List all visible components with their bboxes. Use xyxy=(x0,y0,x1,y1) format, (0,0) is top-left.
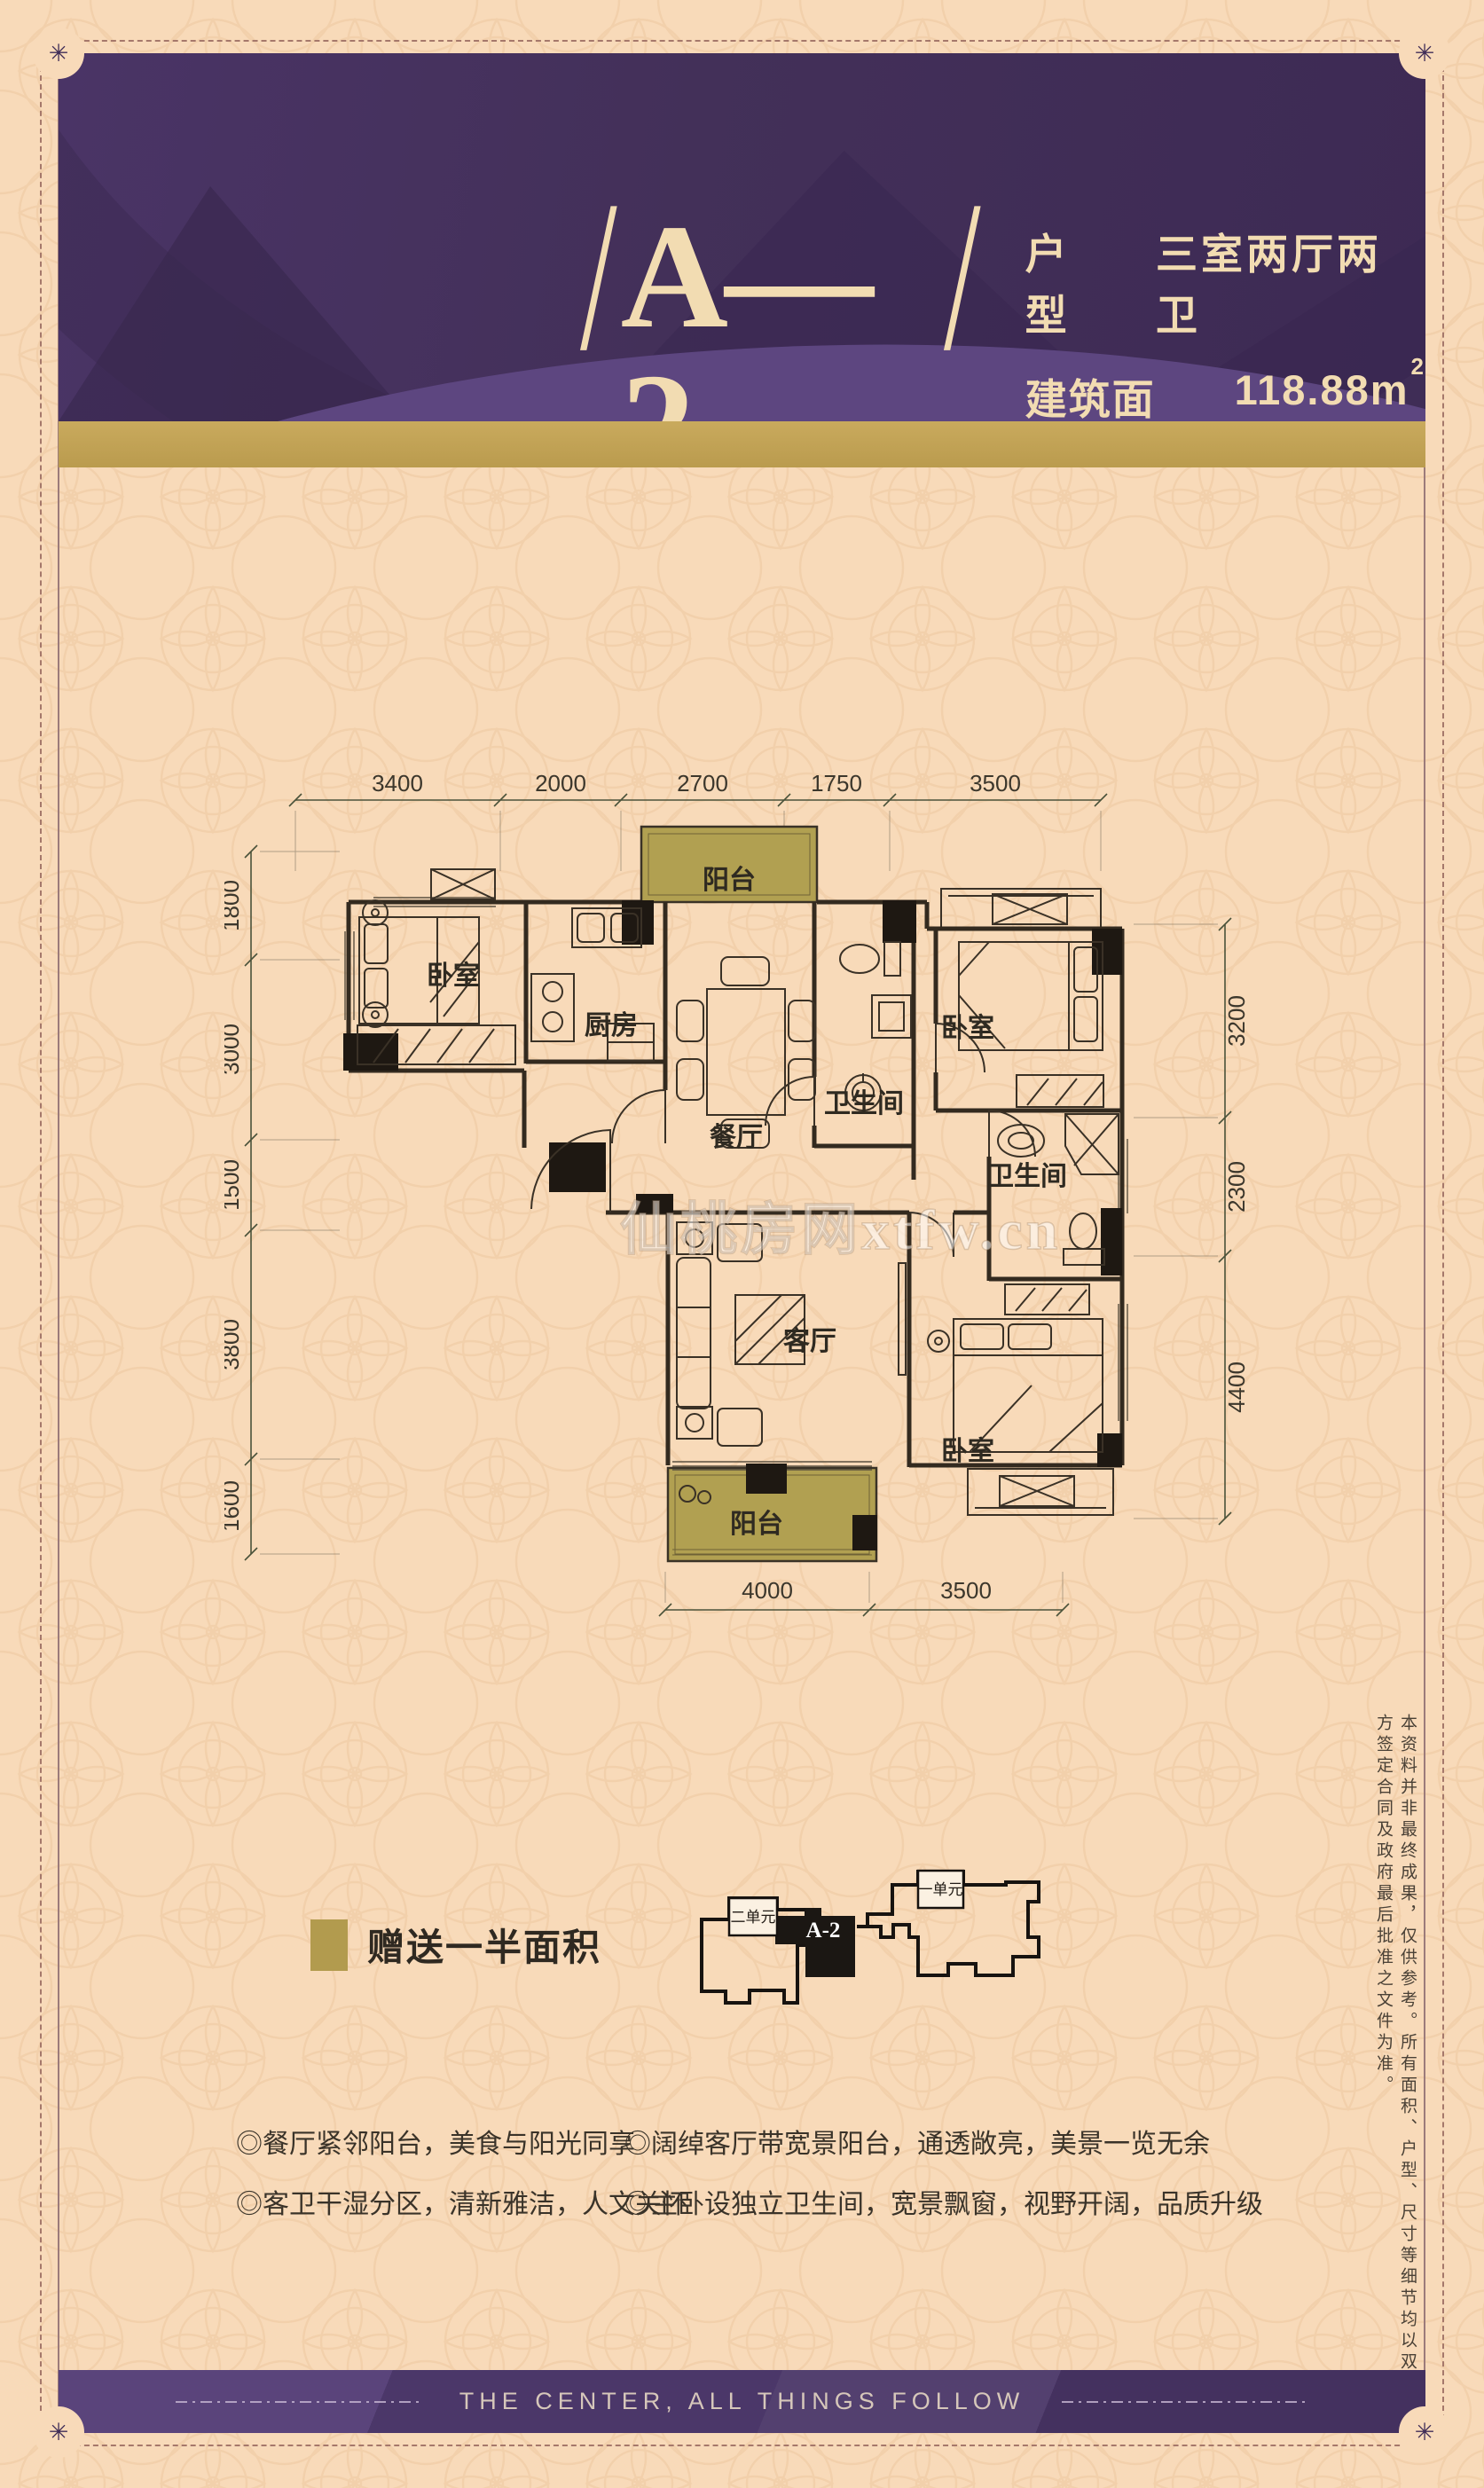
svg-text:卧室: 卧室 xyxy=(941,1436,994,1466)
gold-accent-bar xyxy=(59,421,1425,467)
balcony-areas xyxy=(641,827,876,1561)
svg-text:客厅: 客厅 xyxy=(783,1326,836,1356)
svg-text:卧室: 卧室 xyxy=(941,1013,994,1043)
feature-item: ◎阔绰客厅带宽景阳台，通透敞亮，美景一览无余 xyxy=(624,2122,1210,2161)
area-label: 建筑面积： xyxy=(1025,365,1235,421)
footer-dash-line-right xyxy=(1062,2401,1308,2403)
feature-item: ◎餐厅紧邻阳台，美食与阳光同享 xyxy=(236,2122,624,2161)
svg-text:3500: 3500 xyxy=(940,1577,992,1604)
feature-list: ◎餐厅紧邻阳台，美食与阳光同享 ◎阔绰客厅带宽景阳台，通透敞亮，美景一览无余 ◎… xyxy=(236,2122,1265,2242)
type-label: 户型 xyxy=(1025,220,1115,342)
corner-ornament: ✳ xyxy=(1399,27,1450,79)
area-value: 118.88m xyxy=(1235,365,1409,421)
svg-text:厨房: 厨房 xyxy=(585,1011,638,1040)
poster-page: / A—2 / 户型 三室两厅两卫 建筑面积： 118.88m 2 ✳ ✳ ✳ … xyxy=(0,0,1484,2488)
asterisk-icon: ✳ xyxy=(1415,42,1435,66)
unit-code: A—2 xyxy=(621,202,935,421)
keymap-unit2-label: 二单元 xyxy=(731,1909,776,1926)
corner-ornament: ✳ xyxy=(33,27,84,79)
building-key-map: 二单元 一单元 A-2 xyxy=(699,1857,1054,2066)
svg-text:3400: 3400 xyxy=(372,770,423,797)
svg-text:1750: 1750 xyxy=(811,770,862,797)
area-superscript: 2 xyxy=(1411,353,1425,421)
corner-ornament: ✳ xyxy=(33,2406,84,2458)
svg-text:餐厅: 餐厅 xyxy=(710,1123,763,1152)
svg-text:4400: 4400 xyxy=(1223,1362,1250,1413)
svg-text:阳台: 阳台 xyxy=(703,865,756,895)
legend-label: 赠送一半面积 xyxy=(367,1918,601,1972)
svg-text:3800: 3800 xyxy=(224,1319,244,1370)
header-content: / A—2 / 户型 三室两厅两卫 建筑面积： 118.88m 2 xyxy=(580,184,1425,421)
watermark: 仙桃房网xtfw.cn xyxy=(620,1198,1061,1261)
floor-plan: 3400 2000 2700 1750 3500 1800 3000 1500 … xyxy=(224,729,1280,1625)
slash-divider: / xyxy=(580,169,617,384)
keymap-unit1-label: 一单元 xyxy=(918,1881,963,1898)
asterisk-icon: ✳ xyxy=(49,42,69,66)
svg-text:卫生间: 卫生间 xyxy=(987,1162,1067,1191)
corner-ornament: ✳ xyxy=(1399,2406,1450,2458)
svg-text:1500: 1500 xyxy=(224,1159,244,1211)
svg-text:4000: 4000 xyxy=(742,1577,793,1604)
feature-item: ◎主卧设独立卫生间，宽景飘窗，视野开阔，品质升级 xyxy=(624,2182,1263,2221)
feature-item: ◎客卫干湿分区，清新雅洁，人文关怀 xyxy=(236,2182,624,2221)
footer-dash-line-left xyxy=(176,2401,422,2403)
svg-text:2300: 2300 xyxy=(1223,1161,1250,1213)
asterisk-icon: ✳ xyxy=(1415,2421,1435,2445)
svg-text:1600: 1600 xyxy=(224,1480,244,1532)
svg-text:2700: 2700 xyxy=(677,770,728,797)
footer-slogan: THE CENTER, ALL THINGS FOLLOW xyxy=(459,2388,1025,2415)
legend-gold-swatch xyxy=(310,1919,348,1971)
svg-text:3200: 3200 xyxy=(1223,995,1250,1047)
disclaimer-text: 本资料并非最终成果，仅供参考。所有面积、户型、尺寸等细节均以双方签定合同及政府最… xyxy=(1371,1714,1419,2388)
svg-text:1800: 1800 xyxy=(224,880,244,931)
legend: 赠送一半面积 xyxy=(310,1918,601,1972)
svg-text:卧室: 卧室 xyxy=(427,961,480,991)
svg-text:3500: 3500 xyxy=(970,770,1021,797)
type-value: 三室两厅两卫 xyxy=(1156,220,1425,342)
asterisk-icon: ✳ xyxy=(49,2421,69,2445)
svg-text:阳台: 阳台 xyxy=(730,1509,783,1539)
header-text-block: 户型 三室两厅两卫 建筑面积： 118.88m 2 xyxy=(1025,220,1425,421)
header-banner: / A—2 / 户型 三室两厅两卫 建筑面积： 118.88m 2 xyxy=(59,53,1425,421)
keymap-highlight-label: A-2 xyxy=(806,1919,841,1943)
footer-bar: THE CENTER, ALL THINGS FOLLOW xyxy=(59,2370,1425,2433)
svg-text:2000: 2000 xyxy=(535,770,586,797)
slash-divider: / xyxy=(944,169,981,384)
svg-text:卫生间: 卫生间 xyxy=(824,1089,904,1118)
svg-text:3000: 3000 xyxy=(224,1024,244,1075)
